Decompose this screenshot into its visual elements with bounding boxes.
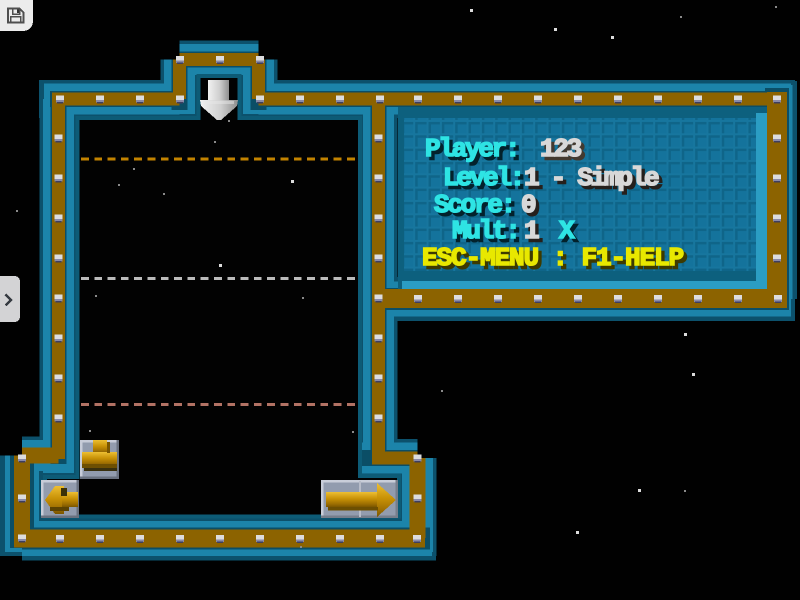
svg-text:123: 123 (540, 134, 582, 164)
svg-text:Level:: Level: (443, 163, 523, 193)
svg-text:ESC-MENU : F1-HELP: ESC-MENU : F1-HELP (422, 243, 684, 273)
svg-text:Player:: Player: (425, 134, 518, 164)
svg-text:Mult:: Mult: (452, 216, 519, 246)
svg-text:1: 1 (524, 216, 539, 246)
svg-text:1 - Simple: 1 - Simple (524, 163, 659, 193)
